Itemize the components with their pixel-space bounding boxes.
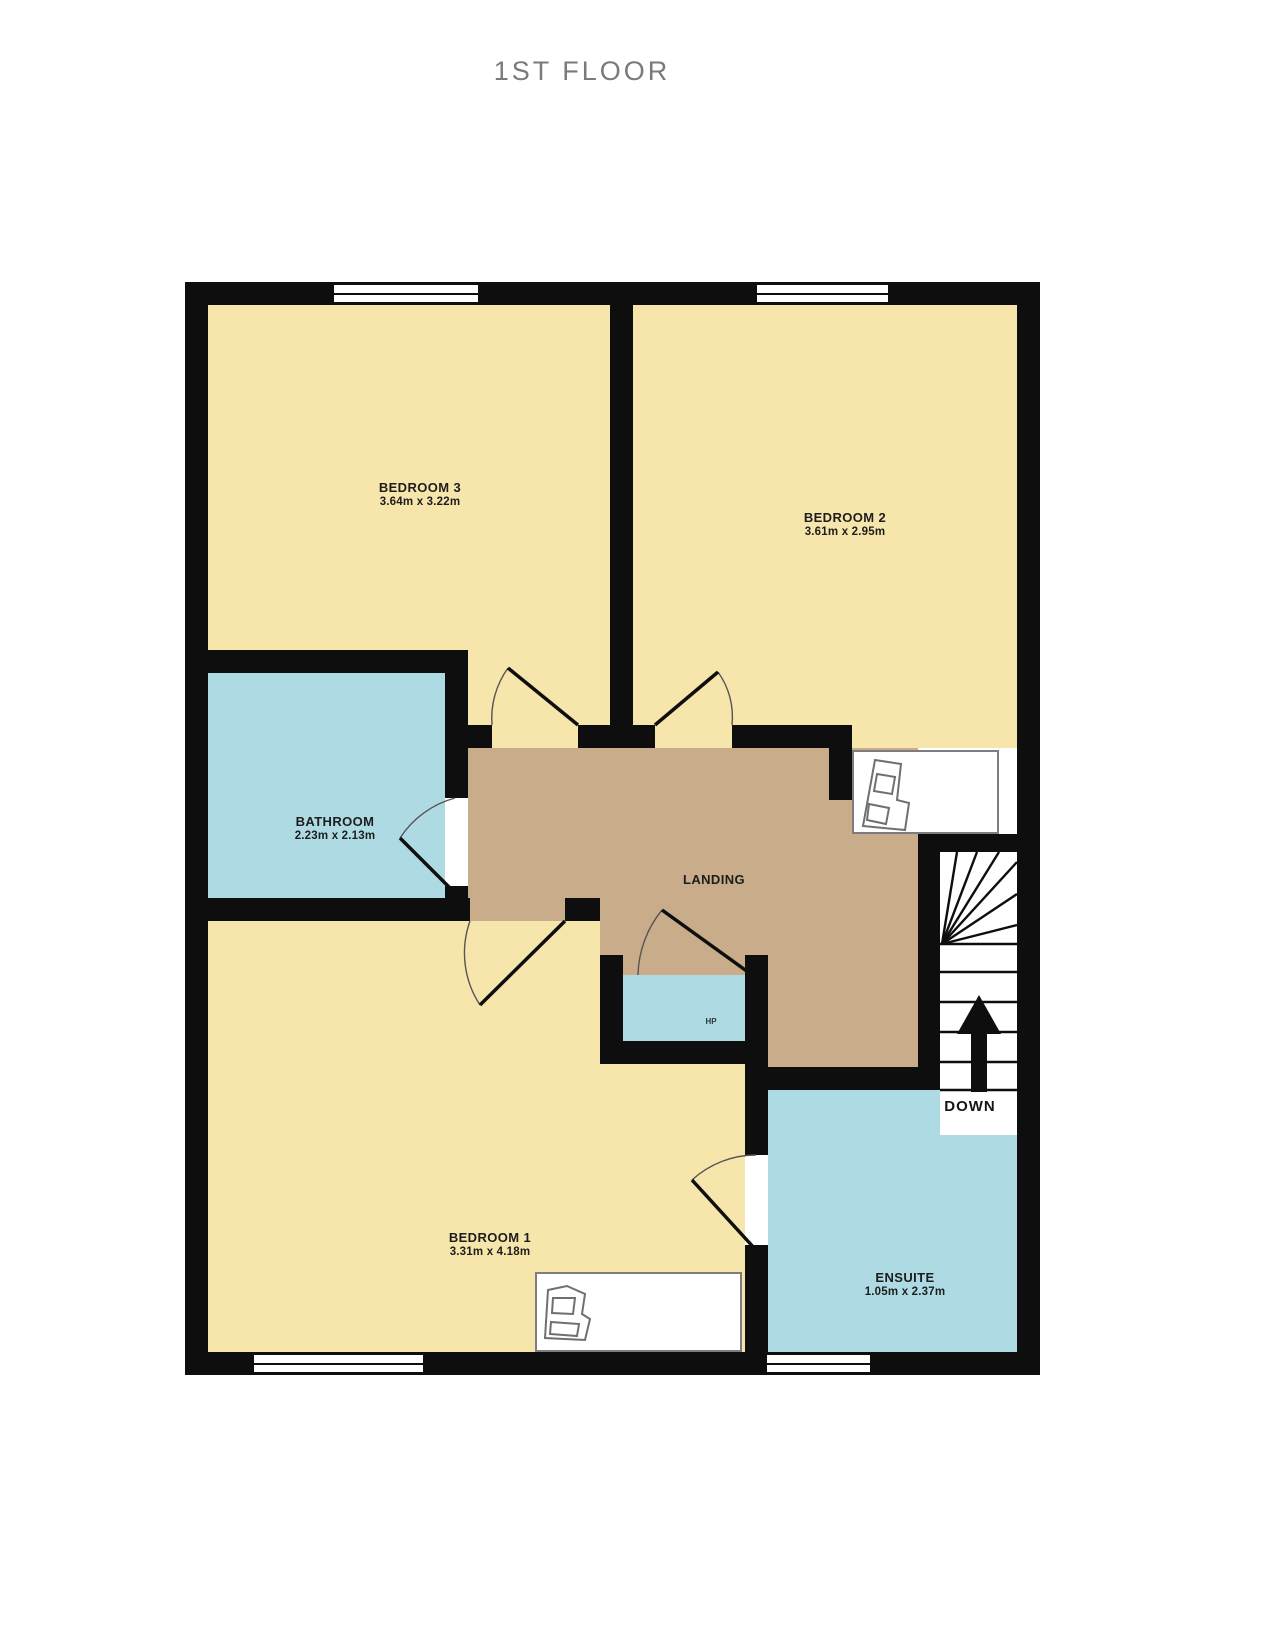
room-bathroom (208, 673, 445, 898)
stairwell (940, 852, 1017, 1135)
label-bedroom-2: BEDROOM 2 3.61m x 2.95m (745, 510, 945, 540)
wall-outer-right (1017, 282, 1040, 1375)
label-stairs-down: DOWN (910, 1098, 1030, 1115)
wall-outer-left (185, 282, 208, 1375)
window-pane-line (334, 293, 478, 295)
window-bedroom-2 (755, 282, 890, 305)
bed (535, 1272, 742, 1352)
wall-bathroom-top (208, 650, 468, 673)
wall-landing-top-3 (732, 725, 852, 748)
room-name: HP (705, 1017, 716, 1026)
label-ensuite: ENSUITE 1.05m x 2.37m (805, 1270, 1005, 1300)
wall-bedroom-divider (610, 305, 633, 748)
wall-ensuite-top (745, 1067, 940, 1090)
wall-bathroom-right-upper (445, 650, 468, 798)
wall-wardrobe-stub (829, 748, 852, 800)
room-dims: 1.05m x 2.37m (805, 1285, 1005, 1300)
window-bedroom-1 (252, 1352, 425, 1375)
window-pane-line (254, 1363, 423, 1365)
wall-stair-left (918, 852, 940, 1090)
wall-below-wardrobe (918, 834, 1040, 852)
room-dims: 2.23m x 2.13m (235, 829, 435, 844)
wardrobe (852, 750, 999, 834)
label-bedroom-3: BEDROOM 3 3.64m x 3.22m (320, 480, 520, 510)
wall-landing-top-2 (578, 725, 655, 748)
room-name: BEDROOM 3 (320, 480, 520, 495)
room-name: LANDING (614, 872, 814, 887)
room-dims: 3.31m x 4.18m (390, 1245, 590, 1260)
room-name: BATHROOM (235, 814, 435, 829)
window-ensuite (765, 1352, 872, 1375)
label-bathroom: BATHROOM 2.23m x 2.13m (235, 814, 435, 844)
room-hp-closet (623, 975, 745, 1041)
room-dims: 3.61m x 2.95m (745, 525, 945, 540)
wall-bedroom1-top-2 (565, 898, 600, 921)
room-name: BEDROOM 2 (745, 510, 945, 525)
label-hp-closet: HP (681, 1017, 741, 1026)
window-pane-line (757, 293, 888, 295)
wall-closet-bottom (600, 1041, 768, 1064)
window-pane-line (767, 1363, 870, 1365)
floor-title: 1ST FLOOR (382, 56, 782, 87)
room-name: BEDROOM 1 (390, 1230, 590, 1245)
wall-ensuite-left-upper (745, 955, 768, 1155)
wall-ensuite-left-lower (745, 1245, 768, 1352)
label-bedroom-1: BEDROOM 1 3.31m x 4.18m (390, 1230, 590, 1260)
room-dims: 3.64m x 3.22m (320, 495, 520, 510)
room-name: ENSUITE (805, 1270, 1005, 1285)
wall-bedroom1-top-1 (208, 898, 470, 921)
label-landing: LANDING (614, 872, 814, 887)
wall-outer-top (185, 282, 1040, 305)
stairs-direction: DOWN (944, 1098, 996, 1115)
window-bedroom-3 (332, 282, 480, 305)
floorplan: BEDROOM 3 3.64m x 3.22m BEDROOM 2 3.61m … (185, 282, 1040, 1375)
